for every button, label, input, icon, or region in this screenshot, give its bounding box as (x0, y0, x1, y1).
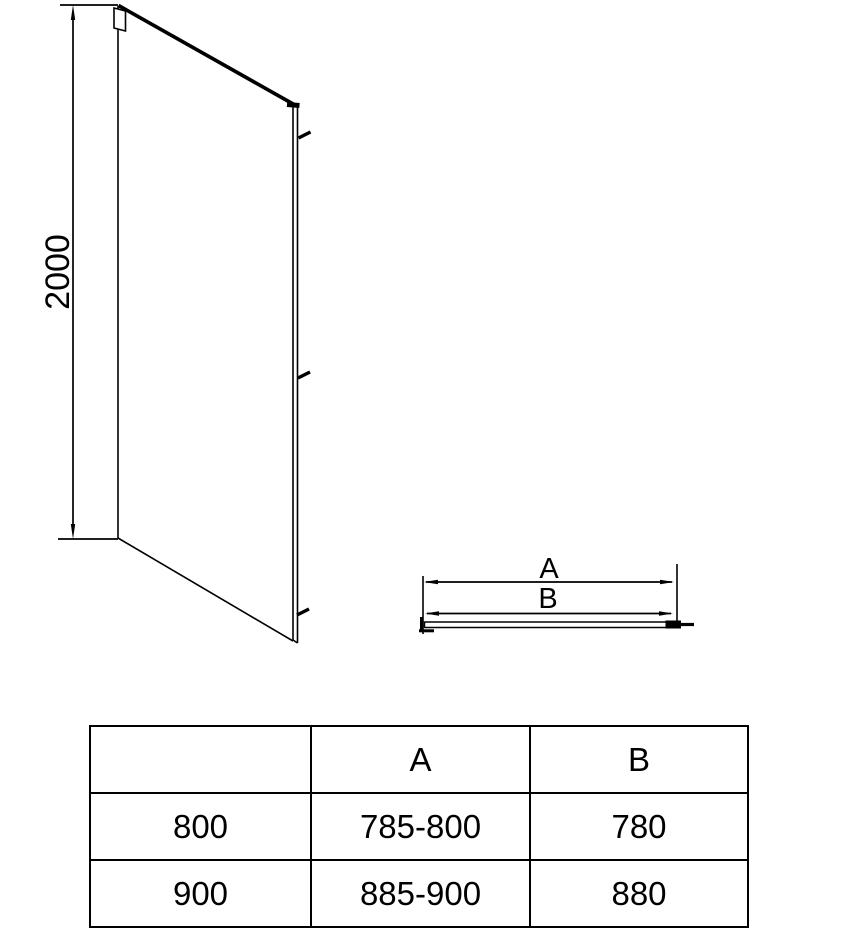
technical-drawing: 2000 (0, 0, 846, 700)
dimension-a: A (424, 553, 674, 585)
dimension-b: B (425, 583, 673, 616)
height-dimension-label: 2000 (39, 234, 77, 310)
panel-plan-section (419, 617, 694, 632)
plan-view: A B (419, 553, 694, 634)
cell-b-900: 880 (530, 860, 748, 927)
drawing-page: 2000 (0, 0, 846, 938)
glass-panel-outline (118, 6, 298, 643)
arrowhead-right-a (660, 580, 674, 585)
cell-b-800: 780 (530, 793, 748, 860)
size-table-header-row: A B (90, 726, 748, 793)
size-table: A B 800 785-800 780 900 885-900 880 (89, 725, 749, 928)
panel-bottom-edge (118, 538, 293, 641)
header-cell-b: B (530, 726, 748, 793)
size-table-row-800: 800 785-800 780 (90, 793, 748, 860)
cell-model-900: 900 (90, 860, 311, 927)
fixing-tick-top (299, 132, 311, 138)
header-cell-model (90, 726, 311, 793)
size-table-container: A B 800 785-800 780 900 885-900 880 (89, 725, 749, 928)
glass-panel-section (425, 622, 681, 628)
cell-a-900: 885-900 (311, 860, 530, 927)
size-table-row-900: 900 885-900 880 (90, 860, 748, 927)
support-bar-end-cap (287, 105, 300, 106)
arrowhead-left-b (425, 611, 439, 616)
arrowhead-right-b (659, 611, 673, 616)
header-cell-a: A (311, 726, 530, 793)
arrowhead-down (71, 524, 75, 539)
wall-mount-bracket (114, 8, 126, 31)
arrowhead-up (71, 5, 75, 20)
cell-model-800: 800 (90, 793, 311, 860)
fixing-tick-bottom (297, 609, 309, 615)
height-dimension: 2000 (39, 5, 118, 539)
dimension-a-label: A (539, 553, 559, 585)
side-elevation-view: 2000 (39, 5, 311, 643)
fixing-tick-middle (298, 372, 310, 378)
arrowhead-left-a (424, 580, 438, 585)
support-bar (114, 6, 300, 106)
support-bar-line (119, 6, 295, 105)
wall-profile-section (666, 621, 682, 629)
wall-fixing-ticks (297, 132, 311, 615)
cell-a-800: 785-800 (311, 793, 530, 860)
dimension-b-label: B (538, 583, 557, 615)
